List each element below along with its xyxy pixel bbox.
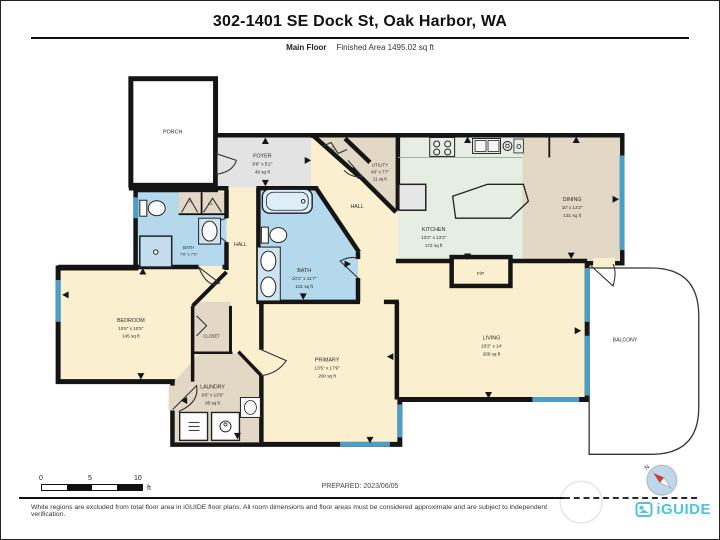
label-foyer-dims: 9'6" x 5'2" bbox=[252, 161, 272, 166]
label-porch: PORCH bbox=[163, 130, 183, 136]
prepared-date: PREPARED: 2023/06/05 bbox=[1, 483, 719, 490]
floorplan-page: 302-1401 SE Dock St, Oak Harbor, WA Main… bbox=[0, 0, 720, 540]
floorplan-drawing: PORCH FOYER 9'6" x 5'2" 49 sq ft CL UTIL… bbox=[1, 1, 719, 539]
compass-icon: N bbox=[644, 464, 677, 495]
iguide-logo: iGUIDE bbox=[635, 501, 711, 518]
label-fireplace: F/P bbox=[477, 271, 484, 277]
label-primary-area: 200 sq ft bbox=[318, 374, 336, 379]
label-bath-primary-name: BATH bbox=[297, 268, 311, 274]
label-utility-area: 21 sq ft bbox=[373, 176, 387, 181]
label-utility-dims: 4'6" x 7'7" bbox=[371, 169, 389, 174]
iguide-logo-icon bbox=[635, 501, 653, 518]
label-laundry-dims: 8'6" x 13'9" bbox=[202, 393, 224, 398]
shower-drain bbox=[154, 250, 158, 254]
toilet-tank-2 bbox=[261, 227, 268, 243]
label-bath-hall-name: BATH bbox=[183, 245, 194, 250]
sink-1 bbox=[261, 251, 276, 271]
laundry-door-gap bbox=[169, 386, 178, 411]
label-closet-c: C bbox=[189, 199, 192, 204]
label-bedroom-dims: 15'6" x 10'5" bbox=[118, 326, 143, 331]
label-kitchen-dims: 13'2" x 13'2" bbox=[421, 235, 446, 240]
label-kitchen-name: KITCHEN bbox=[422, 227, 446, 233]
room-closet-bedroom bbox=[193, 302, 231, 354]
iguide-wordmark: iGUIDE bbox=[656, 501, 711, 518]
label-laundry-area: 85 sq ft bbox=[205, 400, 220, 405]
label-dining-name: DINING bbox=[563, 197, 582, 203]
balcony-outline bbox=[589, 268, 699, 454]
tub-faucet bbox=[301, 199, 305, 203]
scale-tick-10: 10 bbox=[134, 475, 142, 482]
label-closet-cl: CL bbox=[208, 201, 214, 206]
label-laundry-name: LAUNDRY bbox=[200, 385, 225, 391]
label-foyer-name: FOYER bbox=[253, 153, 272, 159]
label-closet-bedroom: CLOSET bbox=[203, 334, 220, 339]
footer-rule-dashed bbox=[564, 497, 697, 499]
label-living-dims: 19'2" x 14' bbox=[481, 344, 502, 349]
label-hall-lower: HALL bbox=[234, 242, 247, 248]
label-living-name: LIVING bbox=[483, 336, 501, 342]
label-kitchen-area: 172 sq ft bbox=[425, 243, 443, 248]
sink-2 bbox=[261, 277, 276, 297]
label-utility-name: UTILITY bbox=[372, 162, 388, 167]
label-bedroom-name: BEDROOM bbox=[117, 318, 145, 324]
toilet-bowl-2 bbox=[270, 228, 287, 243]
room-closets-c-cl bbox=[179, 192, 227, 214]
label-living-area: 268 sq ft bbox=[483, 352, 501, 357]
scale-tick-0: 0 bbox=[39, 475, 43, 482]
label-foyer-area: 49 sq ft bbox=[255, 169, 271, 174]
footer-rule bbox=[19, 497, 564, 499]
label-dining-area: 131 sq ft bbox=[563, 213, 581, 218]
label-primary-name: PRIMARY bbox=[315, 358, 340, 364]
scale-tick-5: 5 bbox=[88, 475, 92, 482]
toilet-tank bbox=[140, 200, 147, 216]
label-bath-hall-dims: 7'8" x 7'9" bbox=[180, 252, 198, 257]
label-hall-upper: HALL bbox=[351, 204, 364, 210]
label-balcony: BALCONY bbox=[613, 338, 638, 344]
refrigerator bbox=[399, 184, 426, 210]
balcony-door-gap bbox=[593, 258, 615, 267]
label-bath-primary-dims: 10'1" x 11'7" bbox=[292, 276, 317, 281]
label-bath-primary-area: 101 sq ft bbox=[295, 284, 313, 289]
label-bedroom-area: 145 sq ft bbox=[122, 334, 140, 339]
sink bbox=[202, 221, 217, 241]
toilet-bowl bbox=[148, 201, 165, 216]
disclaimer-text: White regions are excluded from total fl… bbox=[31, 504, 571, 518]
label-dining-dims: 10' x 13'2" bbox=[562, 205, 583, 210]
label-primary-dims: 13'5" x 17'9" bbox=[315, 366, 340, 371]
